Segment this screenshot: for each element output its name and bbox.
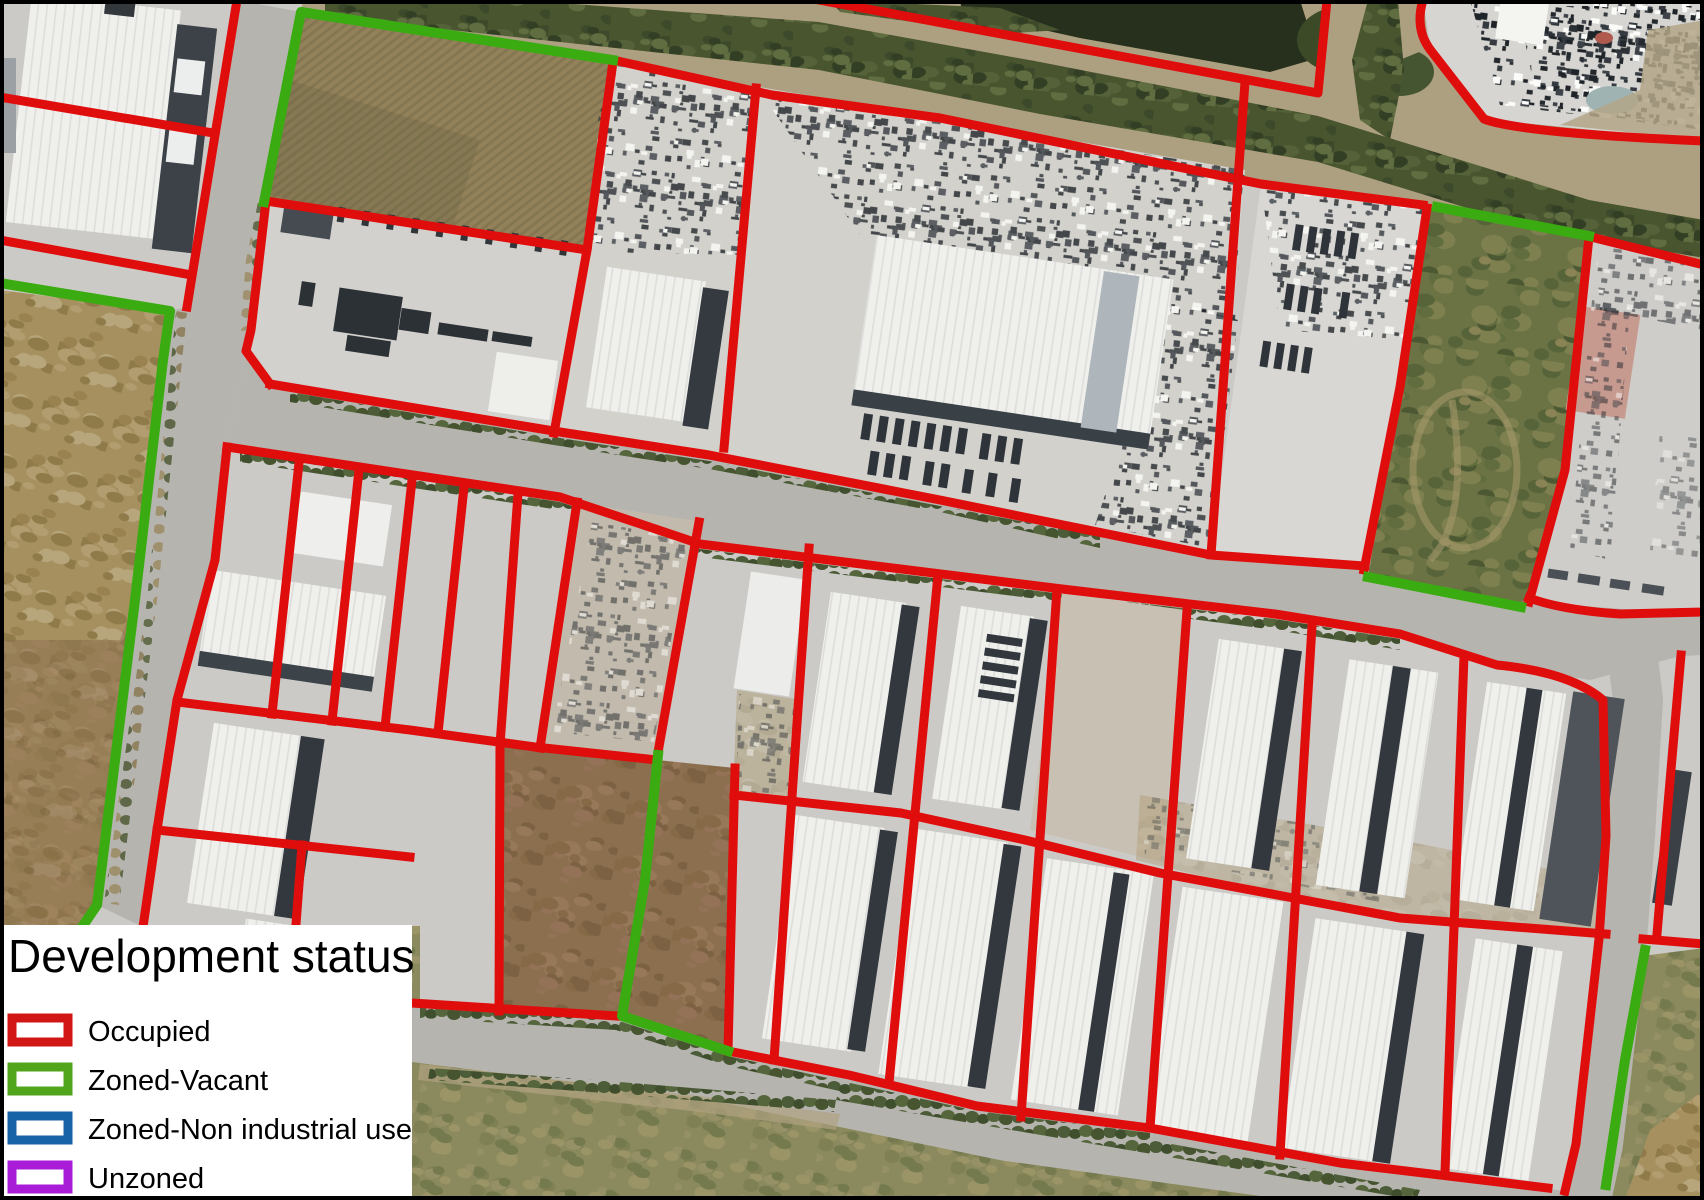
- svg-text:Zoned-Non industrial use: Zoned-Non industrial use: [88, 1114, 412, 1146]
- svg-text:Unzoned: Unzoned: [88, 1163, 204, 1195]
- svg-text:Zoned-Vacant: Zoned-Vacant: [88, 1065, 268, 1097]
- svg-text:Development status: Development status: [8, 930, 415, 982]
- svg-text:Occupied: Occupied: [88, 1016, 211, 1048]
